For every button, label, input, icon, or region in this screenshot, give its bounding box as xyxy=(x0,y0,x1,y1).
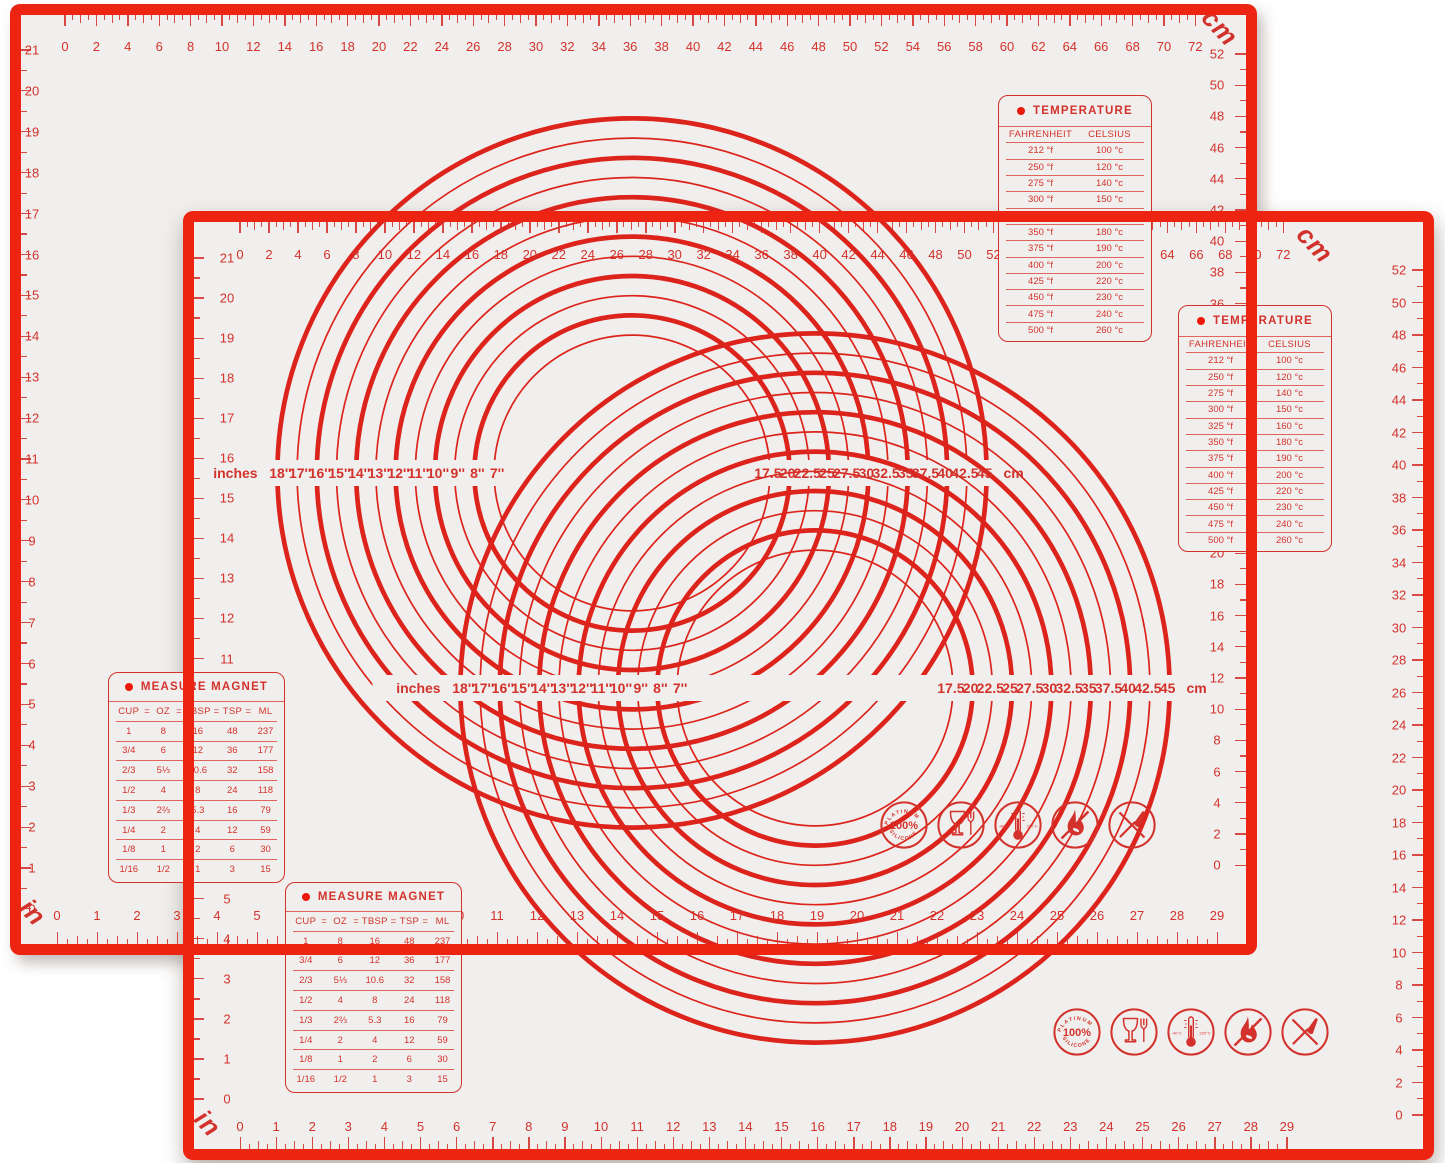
ruler-number: 5 xyxy=(223,891,230,906)
ruler-number: 48 xyxy=(1392,328,1406,343)
ruler-number: 9 xyxy=(28,533,35,548)
ruler-tick xyxy=(1070,1137,1071,1149)
ruler-tick xyxy=(245,15,246,20)
ruler-tick xyxy=(107,939,108,944)
ruler-number: 52 xyxy=(874,39,888,54)
ruler-tick xyxy=(978,222,979,230)
ruler-tick xyxy=(802,15,803,23)
ruler-tick xyxy=(1117,936,1118,944)
table-row: 325 °f160 °c xyxy=(1186,418,1324,434)
ruler-tick xyxy=(363,222,364,227)
ruler-tick xyxy=(194,538,204,539)
table-row: 181648237 xyxy=(116,721,277,741)
ruler-number: 16 xyxy=(465,247,479,262)
ruler-number: 16 xyxy=(309,39,323,54)
ruler-tick xyxy=(112,15,113,23)
ruler-tick xyxy=(747,15,748,20)
table-cell: 4 xyxy=(362,1035,388,1046)
ruler-tick xyxy=(1232,222,1233,227)
ruler-number: 48 xyxy=(1210,109,1224,124)
ruler-number: 10 xyxy=(215,39,229,54)
table-cell: 79 xyxy=(254,805,277,816)
ruler-tick xyxy=(1240,225,1246,226)
ruler-tick xyxy=(805,222,806,230)
ruler-tick xyxy=(877,222,879,233)
table-cell: 400 °f xyxy=(1006,260,1075,271)
table-cell: 1/16 xyxy=(116,864,142,875)
ruler-tick xyxy=(677,936,678,944)
ruler-tick xyxy=(1006,15,1008,26)
table-cell: 5⅓ xyxy=(153,765,173,776)
ruler-number: 24 xyxy=(1099,1119,1113,1134)
ruler-tick xyxy=(777,932,778,944)
ruler-tick xyxy=(194,297,204,298)
ruler-tick xyxy=(557,936,558,944)
ruler-tick xyxy=(637,1137,638,1149)
ruler-tick xyxy=(952,1144,953,1149)
table-cell: = xyxy=(211,706,222,717)
ruler-tick xyxy=(143,15,144,23)
ruler-tick xyxy=(1235,209,1246,210)
ruler-tick xyxy=(1240,755,1246,756)
ruler-tick xyxy=(321,1144,322,1149)
ruler-tick xyxy=(1412,984,1423,985)
ruler-tick xyxy=(763,15,764,20)
ruler-tick xyxy=(198,15,199,20)
ruler-tick xyxy=(667,939,668,944)
ruler-tick xyxy=(194,378,204,379)
ruler-tick xyxy=(1152,222,1153,230)
ruler-number: 0 xyxy=(61,39,68,54)
ruler-tick xyxy=(276,1137,277,1149)
ruler-tick xyxy=(510,1141,511,1149)
ruler-tick xyxy=(515,222,516,230)
ruler-tick xyxy=(1417,871,1423,872)
table-cell: 220 °c xyxy=(1075,276,1144,287)
table-cell: 3 xyxy=(399,1074,419,1085)
ruler-number: 10 xyxy=(1392,945,1406,960)
ruler-tick xyxy=(479,222,480,227)
ruler-number: 2 xyxy=(1213,827,1220,842)
ruler-tick xyxy=(1240,818,1246,819)
ruler-tick xyxy=(857,15,858,20)
ruler-tick xyxy=(194,938,204,939)
ruler-tick xyxy=(88,15,89,20)
ruler-tick xyxy=(392,222,393,227)
ruler-tick xyxy=(1137,932,1138,944)
ruler-tick xyxy=(294,1141,295,1149)
ruler-tick xyxy=(590,15,591,20)
ruler-tick xyxy=(1240,724,1246,725)
ruler-number: 13 xyxy=(702,1119,716,1134)
ruler-tick xyxy=(1101,15,1103,26)
ruler-tick xyxy=(308,15,309,20)
ruler-tick xyxy=(206,15,207,23)
ruler-tick xyxy=(194,498,204,499)
table-cell: 1/4 xyxy=(293,1035,319,1046)
table-cell: 4 xyxy=(330,995,350,1006)
table-cell: 32 xyxy=(222,765,242,776)
front-baking-mat: inches18''17''16''15''14''13''12''11''10… xyxy=(183,211,1434,1160)
table-cell: 1/3 xyxy=(293,1015,319,1026)
ruler-tick xyxy=(1061,1144,1062,1149)
ruler-tick xyxy=(1240,100,1246,101)
ruler-number: 1 xyxy=(28,861,35,876)
ruler-number: 11 xyxy=(630,1119,644,1134)
ruler-tick xyxy=(438,1141,439,1149)
ruler-number: 23 xyxy=(970,908,984,923)
ruler-tick xyxy=(276,15,277,20)
ruler-tick xyxy=(558,222,560,233)
ruler-number: 10 xyxy=(1210,702,1224,717)
ruler-number: 64 xyxy=(1063,39,1077,54)
ruler-tick xyxy=(1412,399,1423,400)
ruler-tick xyxy=(812,222,813,227)
ruler-tick xyxy=(316,15,318,26)
ruler-number: 13 xyxy=(220,571,234,586)
ruler-tick xyxy=(21,520,27,521)
ruler-tick xyxy=(622,15,623,20)
ruler-tick xyxy=(772,1144,773,1149)
ruler-tick xyxy=(897,932,898,944)
ruler-tick xyxy=(1151,1144,1152,1149)
ruler-tick xyxy=(732,15,733,20)
ruler-tick xyxy=(837,936,838,944)
ruler-tick xyxy=(21,397,27,398)
table-cell: 230 °c xyxy=(1255,502,1324,513)
ruler-tick xyxy=(1156,15,1157,20)
table-cell: 180 °c xyxy=(1255,437,1324,448)
ruler-tick xyxy=(669,15,670,20)
ruler-tick xyxy=(609,222,610,227)
ruler-tick xyxy=(1235,178,1246,179)
ruler-tick xyxy=(1240,131,1246,132)
ruler-tick xyxy=(1016,1141,1017,1149)
table-cell: 375 °f xyxy=(1186,453,1255,464)
ruler-tick xyxy=(607,939,608,944)
ruler-tick xyxy=(393,1144,394,1149)
circle-diameter-inch-label: 9'' xyxy=(450,462,464,484)
ruler-number: 38 xyxy=(1392,490,1406,505)
circle-diameter-inch-label: 11'' xyxy=(408,462,429,484)
ruler-tick xyxy=(21,356,27,357)
ruler-tick xyxy=(736,1144,737,1149)
ruler-tick xyxy=(1235,833,1246,834)
ruler-tick xyxy=(187,939,188,944)
table-cell: TBSP xyxy=(362,916,388,927)
ruler-tick xyxy=(303,1144,304,1149)
ruler-tick xyxy=(496,15,497,20)
ruler-tick xyxy=(474,1141,475,1149)
ruler-tick xyxy=(781,1137,782,1149)
ruler-tick xyxy=(1177,932,1178,944)
ruler-tick xyxy=(937,932,938,944)
ruler-tick xyxy=(998,1137,999,1149)
ruler-number: 20 xyxy=(25,83,39,98)
circle-diameter-inch-label: 7'' xyxy=(490,462,504,484)
table-row: 275 °f140 °c xyxy=(1186,385,1324,401)
measure-table-body: CUP=OZ=TBSP=TSP=ML1816482373/4612361772/… xyxy=(109,702,284,882)
ruler-number: 18 xyxy=(770,908,784,923)
ruler-tick xyxy=(1417,643,1423,644)
ruler-number: 8 xyxy=(187,39,194,54)
table-cell: TSP xyxy=(399,916,419,927)
ruler-tick xyxy=(276,222,277,227)
ruler-tick xyxy=(1412,1114,1423,1115)
ruler-tick xyxy=(370,222,371,230)
table-cell: 237 xyxy=(431,936,454,947)
table-cell: 160 °c xyxy=(1075,211,1144,222)
ruler-tick xyxy=(464,222,465,227)
ruler-number: 0 xyxy=(236,1119,243,1134)
table-row: 1/812630 xyxy=(116,839,277,859)
table-cell: 1/16 xyxy=(293,1074,319,1085)
ruler-tick xyxy=(194,398,200,399)
table-row: 450 °f230 °c xyxy=(1186,499,1324,515)
circle-diameter-inch-label: 10'' xyxy=(610,677,632,699)
table-cell: CUP xyxy=(116,706,141,717)
ruler-number: 14 xyxy=(436,247,450,262)
ruler-tick xyxy=(399,222,400,230)
table-cell: 10.6 xyxy=(185,765,211,776)
ruler-tick xyxy=(194,277,200,278)
ruler-tick xyxy=(907,1141,908,1149)
ruler-tick xyxy=(194,978,204,979)
ruler-tick xyxy=(159,15,161,26)
ruler-tick xyxy=(707,939,708,944)
table-cell: 36 xyxy=(222,745,242,756)
platinum-silicone-badge-icon: PLATINUMSILICONE100% xyxy=(1052,1007,1102,1057)
ruler-tick xyxy=(257,932,258,944)
ruler-tick xyxy=(519,1144,520,1149)
ruler-tick xyxy=(653,15,654,20)
ruler-tick xyxy=(1417,708,1423,709)
ruler-tick xyxy=(709,1137,710,1149)
ruler-tick xyxy=(119,15,120,20)
product-image: { "colors":{ "border_red":"#ee2412", "ma… xyxy=(0,0,1445,1163)
ruler-tick xyxy=(754,1144,755,1149)
ruler-tick xyxy=(1046,15,1047,20)
ruler-tick xyxy=(537,222,538,227)
ruler-tick xyxy=(194,438,200,439)
ruler-tick xyxy=(1417,1001,1423,1002)
ruler-number: 11 xyxy=(220,651,234,666)
table-cell: 12 xyxy=(362,955,388,966)
ruler-tick xyxy=(21,806,27,807)
ruler-number: 18 xyxy=(883,1119,897,1134)
circle-diameter-cm-label: 37.5 xyxy=(912,462,939,484)
ruler-tick xyxy=(1163,15,1165,26)
ruler-number: 19 xyxy=(919,1119,933,1134)
ruler-tick xyxy=(1127,939,1128,944)
ruler-number: 56 xyxy=(937,39,951,54)
ruler-number: 0 xyxy=(223,1092,230,1107)
table-cell: 250 °f xyxy=(1186,372,1255,383)
table-row: 1/24824118 xyxy=(116,780,277,800)
table-row: 1/32⅔5.31679 xyxy=(116,800,277,820)
ruler-tick xyxy=(1417,546,1423,547)
ruler-tick xyxy=(1115,1144,1116,1149)
ruler-tick xyxy=(1157,936,1158,944)
ruler-tick xyxy=(177,932,178,944)
ruler-tick xyxy=(1087,939,1088,944)
ruler-number: 0 xyxy=(1213,858,1220,873)
ruler-tick xyxy=(297,222,299,233)
ruler-tick xyxy=(418,15,419,20)
ruler-tick xyxy=(194,918,200,919)
table-cell: 260 °c xyxy=(1255,535,1324,546)
ruler-tick xyxy=(1235,553,1246,554)
ruler-tick xyxy=(501,1144,502,1149)
ruler-tick xyxy=(384,1137,385,1149)
ruler-number: 66 xyxy=(1094,39,1108,54)
ruler-tick xyxy=(957,936,958,944)
ruler-tick xyxy=(842,15,843,20)
table-row: 500 °f260 °c xyxy=(1186,532,1324,548)
ruler-tick xyxy=(566,222,567,227)
ruler-number: 50 xyxy=(1210,78,1224,93)
ruler-tick xyxy=(197,936,198,944)
table-row: 1/4241259 xyxy=(293,1030,454,1050)
ruler-tick xyxy=(849,15,851,26)
ruler-tick xyxy=(537,932,538,944)
ruler-tick xyxy=(700,15,701,20)
ruler-number: 36 xyxy=(754,247,768,262)
ruler-tick xyxy=(682,1144,683,1149)
ruler-tick xyxy=(619,1141,620,1149)
ruler-tick xyxy=(1412,1049,1423,1050)
table-cell: 24 xyxy=(222,785,242,796)
ruler-tick xyxy=(717,936,718,944)
ruler-number: 2 xyxy=(265,247,272,262)
ruler-tick xyxy=(433,15,434,20)
ruler-tick xyxy=(504,15,506,26)
ruler-number: 25 xyxy=(1050,908,1064,923)
ruler-tick xyxy=(810,15,811,20)
ruler-tick xyxy=(645,222,647,233)
no-knife-icon xyxy=(1107,800,1157,850)
table-cell: 2 xyxy=(153,825,173,836)
ruler-number: 12 xyxy=(220,611,234,626)
ruler-tick xyxy=(787,15,789,26)
ruler-tick xyxy=(628,1144,629,1149)
table-cell: 59 xyxy=(431,1035,454,1046)
ruler-number: 27 xyxy=(1130,908,1144,923)
table-row: 1/161/21315 xyxy=(293,1069,454,1089)
ruler-tick xyxy=(1412,952,1423,953)
table-row: 1/161/21315 xyxy=(116,859,277,879)
ruler-tick xyxy=(80,15,81,23)
ruler-tick xyxy=(1124,1141,1125,1149)
ruler-tick xyxy=(508,222,509,227)
table-cell: 3 xyxy=(222,864,242,875)
ruler-tick xyxy=(1077,936,1078,944)
ruler-tick xyxy=(277,936,278,944)
ruler-number: 64 xyxy=(1160,247,1174,262)
ruler-tick xyxy=(57,932,58,944)
ruler-tick xyxy=(384,222,386,233)
ruler-tick xyxy=(253,15,255,26)
red-dot-icon xyxy=(302,893,310,901)
ruler-tick xyxy=(1034,1137,1035,1149)
table-cell: 5.3 xyxy=(185,805,211,816)
ruler-number: 29 xyxy=(1280,1119,1294,1134)
ruler-tick xyxy=(1412,432,1423,433)
table-cell: 190 °c xyxy=(1075,243,1144,254)
table-cell: = xyxy=(388,916,399,927)
table-row: 450 °f230 °c xyxy=(1006,289,1144,305)
ruler-number: 42 xyxy=(717,39,731,54)
table-cell: 425 °f xyxy=(1186,486,1255,497)
ruler-tick xyxy=(559,15,560,20)
ruler-tick xyxy=(366,1141,367,1149)
table-cell: 2⅔ xyxy=(153,805,173,816)
ruler-tick xyxy=(567,15,569,26)
ruler-tick xyxy=(647,939,648,944)
table-cell: 1/2 xyxy=(153,864,173,875)
ruler-tick xyxy=(718,222,719,230)
circle-diameter-cm-label: 42.5 xyxy=(951,462,978,484)
table-row: 375 °f190 °c xyxy=(1006,240,1144,256)
ruler-tick xyxy=(488,15,489,23)
ruler-tick xyxy=(826,222,827,227)
ruler-tick xyxy=(21,152,27,153)
circle-diameter-inch-label: 12'' xyxy=(387,462,409,484)
ruler-tick xyxy=(517,936,518,944)
table-row: 1/32⅔5.31679 xyxy=(293,1010,454,1030)
ruler-tick xyxy=(450,222,451,227)
ruler-tick xyxy=(871,1141,872,1149)
ruler-tick xyxy=(928,222,929,227)
red-dot-icon xyxy=(1017,107,1025,115)
ruler-tick xyxy=(681,222,682,227)
circle-diameter-cm-label: 45 xyxy=(1160,677,1176,699)
ruler-tick xyxy=(1417,903,1423,904)
ruler-tick xyxy=(413,222,415,233)
ruler-tick xyxy=(348,1137,349,1149)
ruler-tick xyxy=(21,683,27,684)
table-cell: 4 xyxy=(153,785,173,796)
ruler-tick xyxy=(1240,599,1246,600)
ruler-number: 32 xyxy=(696,247,710,262)
ruler-number: 11 xyxy=(25,452,39,467)
ruler-number: 22 xyxy=(1027,1119,1041,1134)
ruler-tick xyxy=(623,222,624,227)
ruler-number: 16 xyxy=(25,247,39,262)
ruler-tick xyxy=(1210,222,1211,230)
ruler-number: 42 xyxy=(1210,203,1224,218)
ruler-tick xyxy=(402,15,403,20)
ruler-tick xyxy=(1412,367,1423,368)
ruler-number: 25 xyxy=(1135,1119,1149,1134)
ruler-number: 21 xyxy=(991,1119,1005,1134)
ruler-number: 11 xyxy=(490,908,504,923)
ruler-tick xyxy=(127,939,128,944)
ruler-tick xyxy=(696,222,697,227)
ruler-tick xyxy=(1097,1144,1098,1149)
ruler-tick xyxy=(214,15,215,20)
ruler-tick xyxy=(1417,611,1423,612)
circle-diameter-cm-label: 42.5 xyxy=(1134,677,1161,699)
ruler-tick xyxy=(1214,1137,1215,1149)
ruler-tick xyxy=(21,724,27,725)
ruler-tick xyxy=(710,222,711,227)
ruler-tick xyxy=(1240,631,1246,632)
ruler-tick xyxy=(284,15,286,26)
ruler-tick xyxy=(137,932,138,944)
ruler-number: 28 xyxy=(1244,1119,1258,1134)
ruler-tick xyxy=(331,15,332,23)
